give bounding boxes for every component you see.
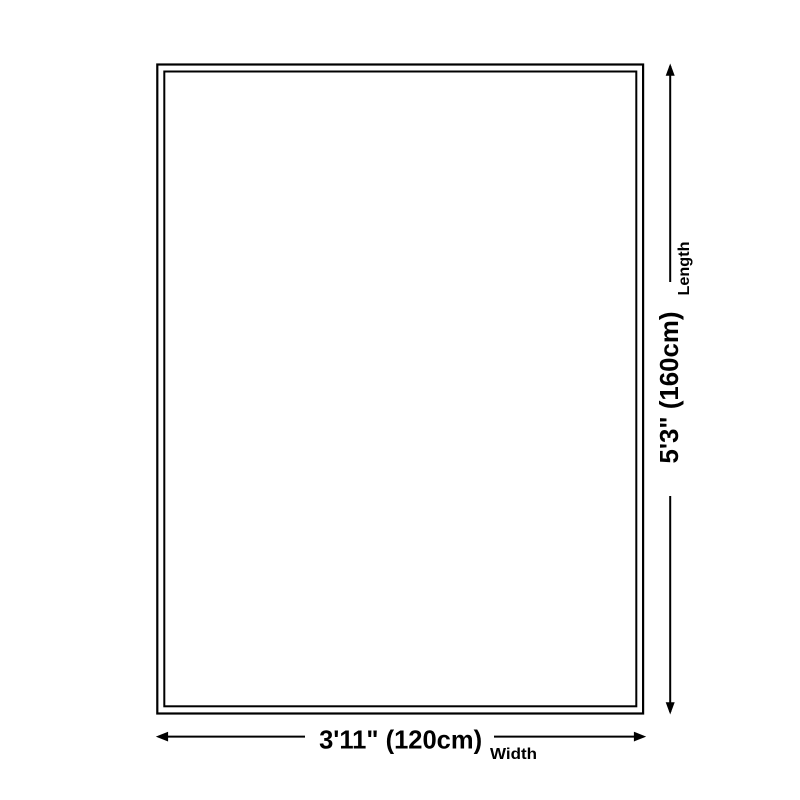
svg-text:Length: Length [676, 242, 693, 296]
svg-text:5'3" (160cm): 5'3" (160cm) [654, 312, 684, 464]
svg-text:Width: Width [490, 746, 537, 763]
svg-text:3'11" (120cm): 3'11" (120cm) [319, 724, 482, 754]
